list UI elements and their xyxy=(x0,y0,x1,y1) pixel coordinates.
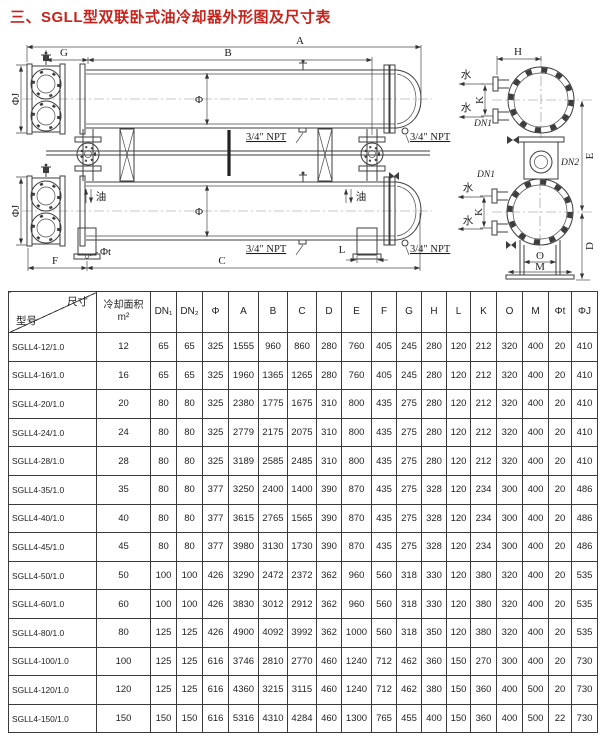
value-cell: 20 xyxy=(549,475,572,504)
value-cell: 435 xyxy=(372,533,397,562)
dim-label-phi-upper: Φ xyxy=(195,94,203,106)
value-cell: 426 xyxy=(203,590,229,619)
value-cell: 20 xyxy=(549,361,572,390)
value-cell: 760 xyxy=(342,361,372,390)
model-cell: SGLL4-150/1.0 xyxy=(9,704,97,733)
value-cell: 426 xyxy=(203,561,229,590)
value-cell: 280 xyxy=(422,390,447,419)
value-cell: 325 xyxy=(203,333,229,362)
value-cell: 120 xyxy=(447,333,471,362)
value-cell: 730 xyxy=(572,676,598,705)
value-cell: 960 xyxy=(259,333,288,362)
value-cell: 318 xyxy=(397,590,422,619)
value-cell: 362 xyxy=(317,618,342,647)
value-cell: 150 xyxy=(97,704,151,733)
value-cell: 150 xyxy=(151,704,177,733)
npt-label-1: 3/4″ NPT xyxy=(246,132,287,143)
value-cell: 20 xyxy=(549,533,572,562)
value-cell: 3012 xyxy=(259,590,288,619)
dim-label-k-lower: K xyxy=(473,208,485,216)
value-cell: 320 xyxy=(497,418,523,447)
model-cell: SGLL4-12/1.0 xyxy=(9,333,97,362)
value-cell: 275 xyxy=(397,504,422,533)
value-cell: 960 xyxy=(342,590,372,619)
value-cell: 1000 xyxy=(342,618,372,647)
value-cell: 5316 xyxy=(229,704,259,733)
table-row: SGLL4-16/1.01665653251960136512652807604… xyxy=(9,361,598,390)
value-cell: 410 xyxy=(572,333,598,362)
value-cell: 212 xyxy=(471,418,497,447)
value-cell: 360 xyxy=(471,676,497,705)
page-title: 三、SGLL型双联卧式油冷却器外形图及尺寸表 xyxy=(10,6,331,27)
value-cell: 460 xyxy=(317,676,342,705)
value-cell: 120 xyxy=(447,561,471,590)
value-cell: 20 xyxy=(549,447,572,476)
value-cell: 4310 xyxy=(259,704,288,733)
value-cell: 400 xyxy=(523,475,549,504)
outline-drawing: Φ Φ xyxy=(0,34,600,288)
table-header-row: 尺寸 型号 冷却面积 m² DN₁ DN₂ Φ A B C D E F G H … xyxy=(9,292,598,333)
value-cell: 150 xyxy=(447,704,471,733)
dim-label-m: M xyxy=(535,261,545,273)
col-header-k: K xyxy=(471,292,497,333)
value-cell: 320 xyxy=(497,333,523,362)
value-cell: 405 xyxy=(372,361,397,390)
value-cell: 400 xyxy=(523,361,549,390)
value-cell: 20 xyxy=(549,504,572,533)
oil-flow-labels: 油 油 xyxy=(86,189,366,203)
value-cell: 22 xyxy=(549,704,572,733)
value-cell: 377 xyxy=(203,533,229,562)
value-cell: 80 xyxy=(151,447,177,476)
value-cell: 712 xyxy=(372,676,397,705)
value-cell: 100 xyxy=(151,590,177,619)
value-cell: 3115 xyxy=(288,676,317,705)
value-cell: 400 xyxy=(523,504,549,533)
npt-label-2: 3/4″ NPT xyxy=(410,132,451,143)
value-cell: 426 xyxy=(203,618,229,647)
value-cell: 80 xyxy=(177,533,203,562)
value-cell: 870 xyxy=(342,533,372,562)
dim-label-d: D xyxy=(584,242,596,250)
value-cell: 2585 xyxy=(259,447,288,476)
value-cell: 380 xyxy=(471,561,497,590)
dim-label-h: H xyxy=(514,46,522,58)
col-header-g: G xyxy=(397,292,422,333)
value-cell: 280 xyxy=(317,333,342,362)
table-row: SGLL4-80/1.08012512542649004092399236210… xyxy=(9,618,598,647)
value-cell: 300 xyxy=(497,475,523,504)
value-cell: 310 xyxy=(317,390,342,419)
value-cell: 4360 xyxy=(229,676,259,705)
dim-label-phit: Φt xyxy=(100,246,111,258)
value-cell: 462 xyxy=(397,647,422,676)
value-cell: 310 xyxy=(317,447,342,476)
value-cell: 3746 xyxy=(229,647,259,676)
value-cell: 1960 xyxy=(229,361,259,390)
value-cell: 405 xyxy=(372,333,397,362)
value-cell: 45 xyxy=(97,533,151,562)
value-cell: 125 xyxy=(151,676,177,705)
value-cell: 24 xyxy=(97,418,151,447)
value-cell: 560 xyxy=(372,561,397,590)
value-cell: 362 xyxy=(317,561,342,590)
value-cell: 616 xyxy=(203,647,229,676)
value-cell: 20 xyxy=(549,590,572,619)
valve-icon-right xyxy=(361,143,383,165)
value-cell: 1240 xyxy=(342,676,372,705)
value-cell: 280 xyxy=(317,361,342,390)
value-cell: 560 xyxy=(372,618,397,647)
value-cell: 325 xyxy=(203,361,229,390)
value-cell: 2400 xyxy=(259,475,288,504)
value-cell: 300 xyxy=(497,647,523,676)
dim-label-g: G xyxy=(60,47,68,59)
value-cell: 280 xyxy=(422,361,447,390)
value-cell: 535 xyxy=(572,561,598,590)
value-cell: 390 xyxy=(317,475,342,504)
dim-label-f: F xyxy=(52,255,58,267)
value-cell: 80 xyxy=(97,618,151,647)
value-cell: 100 xyxy=(97,647,151,676)
table-body: SGLL4-12/1.01265653251555960860280760405… xyxy=(9,333,598,733)
value-cell: 20 xyxy=(549,390,572,419)
value-cell: 486 xyxy=(572,504,598,533)
value-cell: 400 xyxy=(523,390,549,419)
oil-label-right: 油 xyxy=(356,190,367,203)
value-cell: 760 xyxy=(342,333,372,362)
value-cell: 150 xyxy=(177,704,203,733)
value-cell: 245 xyxy=(397,333,422,362)
col-header-h: H xyxy=(422,292,447,333)
value-cell: 4900 xyxy=(229,618,259,647)
end-view-upper: H K 水 水 DN1 xyxy=(459,46,594,138)
value-cell: 125 xyxy=(177,647,203,676)
value-cell: 3615 xyxy=(229,504,259,533)
cooling-area-line1: 冷却面积 xyxy=(104,300,144,311)
value-cell: 1675 xyxy=(288,390,317,419)
value-cell: 300 xyxy=(497,533,523,562)
model-cell: SGLL4-16/1.0 xyxy=(9,361,97,390)
model-cell: SGLL4-100/1.0 xyxy=(9,647,97,676)
value-cell: 400 xyxy=(497,676,523,705)
value-cell: 560 xyxy=(372,590,397,619)
value-cell: 1775 xyxy=(259,390,288,419)
value-cell: 150 xyxy=(447,647,471,676)
value-cell: 2810 xyxy=(259,647,288,676)
col-header-dn1: DN₁ xyxy=(151,292,177,333)
value-cell: 330 xyxy=(422,561,447,590)
corner-size-label: 尺寸 xyxy=(67,296,88,309)
value-cell: 234 xyxy=(471,475,497,504)
col-header-m: M xyxy=(523,292,549,333)
value-cell: 212 xyxy=(471,333,497,362)
value-cell: 800 xyxy=(342,418,372,447)
value-cell: 1365 xyxy=(259,361,288,390)
value-cell: 80 xyxy=(177,475,203,504)
water-label-1: 水 xyxy=(461,69,472,81)
value-cell: 3250 xyxy=(229,475,259,504)
value-cell: 3830 xyxy=(229,590,259,619)
value-cell: 390 xyxy=(317,504,342,533)
value-cell: 400 xyxy=(523,533,549,562)
value-cell: 50 xyxy=(97,561,151,590)
value-cell: 1730 xyxy=(288,533,317,562)
oil-label-left: 油 xyxy=(96,190,107,203)
value-cell: 730 xyxy=(572,647,598,676)
table-row: SGLL4-40/1.04080803773615276515653908704… xyxy=(9,504,598,533)
value-cell: 460 xyxy=(317,704,342,733)
model-cell: SGLL4-120/1.0 xyxy=(9,676,97,705)
value-cell: 328 xyxy=(422,504,447,533)
value-cell: 80 xyxy=(151,390,177,419)
drain-valve-icon xyxy=(506,241,516,249)
value-cell: 2765 xyxy=(259,504,288,533)
value-cell: 2372 xyxy=(288,561,317,590)
value-cell: 280 xyxy=(422,447,447,476)
npt-label-3: 3/4″ NPT xyxy=(246,244,287,255)
value-cell: 435 xyxy=(372,504,397,533)
cooling-area-line2: m² xyxy=(118,312,130,323)
value-cell: 320 xyxy=(497,361,523,390)
value-cell: 486 xyxy=(572,475,598,504)
value-cell: 400 xyxy=(497,704,523,733)
value-cell: 212 xyxy=(471,361,497,390)
dn1-label-upper: DN1 xyxy=(473,119,492,129)
value-cell: 400 xyxy=(523,418,549,447)
value-cell: 275 xyxy=(397,533,422,562)
col-header-cooling-area: 冷却面积 m² xyxy=(97,292,151,333)
value-cell: 60 xyxy=(97,590,151,619)
corner-model-label: 型号 xyxy=(16,315,37,328)
value-cell: 325 xyxy=(203,418,229,447)
value-cell: 120 xyxy=(97,676,151,705)
table-row: SGLL4-50/1.05010010042632902472237236296… xyxy=(9,561,598,590)
value-cell: 100 xyxy=(177,561,203,590)
value-cell: 40 xyxy=(97,504,151,533)
value-cell: 2770 xyxy=(288,647,317,676)
value-cell: 20 xyxy=(549,333,572,362)
value-cell: 150 xyxy=(447,676,471,705)
value-cell: 462 xyxy=(397,676,422,705)
water-label-4: 水 xyxy=(463,215,474,227)
value-cell: 800 xyxy=(342,390,372,419)
value-cell: 270 xyxy=(471,647,497,676)
value-cell: 410 xyxy=(572,447,598,476)
value-cell: 320 xyxy=(497,390,523,419)
value-cell: 80 xyxy=(177,447,203,476)
interconnecting-pipework xyxy=(46,129,430,181)
value-cell: 3290 xyxy=(229,561,259,590)
value-cell: 360 xyxy=(471,704,497,733)
dim-label-k-upper: K xyxy=(474,96,486,104)
table-row: SGLL4-150/1.0150150150616531643104284460… xyxy=(9,704,598,733)
col-header-f: F xyxy=(372,292,397,333)
npt-label-4: 3/4″ NPT xyxy=(410,244,451,255)
value-cell: 400 xyxy=(523,618,549,647)
value-cell: 1240 xyxy=(342,647,372,676)
value-cell: 80 xyxy=(151,504,177,533)
value-cell: 380 xyxy=(422,676,447,705)
dim-label-phij-lower: ΦJ xyxy=(10,204,22,217)
dim-label-phi-lower: Φ xyxy=(195,206,203,218)
value-cell: 120 xyxy=(447,533,471,562)
water-label-2: 水 xyxy=(461,102,472,114)
value-cell: 100 xyxy=(151,561,177,590)
col-header-phit: Φt xyxy=(549,292,572,333)
value-cell: 435 xyxy=(372,390,397,419)
value-cell: 318 xyxy=(397,561,422,590)
value-cell: 435 xyxy=(372,475,397,504)
catalog-page: { "title": "三、SGLL型双联卧式油冷却器外形图及尺寸表", "di… xyxy=(0,0,600,742)
col-header-d: D xyxy=(317,292,342,333)
dimension-table-wrap: 尺寸 型号 冷却面积 m² DN₁ DN₂ Φ A B C D E F G H … xyxy=(8,291,598,733)
value-cell: 20 xyxy=(549,561,572,590)
model-cell: SGLL4-35/1.0 xyxy=(9,475,97,504)
value-cell: 280 xyxy=(422,418,447,447)
table-row: SGLL4-60/1.06010010042638303012291236296… xyxy=(9,590,598,619)
value-cell: 377 xyxy=(203,504,229,533)
dim-label-phij-upper: ΦJ xyxy=(10,92,22,105)
value-cell: 486 xyxy=(572,533,598,562)
value-cell: 435 xyxy=(372,418,397,447)
table-row: SGLL4-12/1.01265653251555960860280760405… xyxy=(9,333,598,362)
value-cell: 400 xyxy=(523,447,549,476)
value-cell: 80 xyxy=(177,418,203,447)
value-cell: 280 xyxy=(422,333,447,362)
value-cell: 2472 xyxy=(259,561,288,590)
value-cell: 325 xyxy=(203,390,229,419)
value-cell: 350 xyxy=(422,618,447,647)
value-cell: 765 xyxy=(372,704,397,733)
value-cell: 730 xyxy=(572,704,598,733)
channel-flange-lower xyxy=(31,181,61,243)
value-cell: 120 xyxy=(447,618,471,647)
model-cell: SGLL4-80/1.0 xyxy=(9,618,97,647)
value-cell: 435 xyxy=(372,447,397,476)
value-cell: 400 xyxy=(422,704,447,733)
value-cell: 870 xyxy=(342,475,372,504)
value-cell: 320 xyxy=(497,561,523,590)
value-cell: 1565 xyxy=(288,504,317,533)
value-cell: 12 xyxy=(97,333,151,362)
value-cell: 400 xyxy=(523,333,549,362)
value-cell: 410 xyxy=(572,361,598,390)
col-header-phij: ΦJ xyxy=(572,292,598,333)
table-row: SGLL4-35/1.03580803773250240014003908704… xyxy=(9,475,598,504)
dn2-label: DN2 xyxy=(560,158,579,168)
col-header-l: L xyxy=(447,292,471,333)
value-cell: 870 xyxy=(342,504,372,533)
value-cell: 362 xyxy=(317,590,342,619)
value-cell: 125 xyxy=(177,618,203,647)
corner-cell: 尺寸 型号 xyxy=(9,292,97,333)
table-row: SGLL4-28/1.02880803253189258524853108004… xyxy=(9,447,598,476)
dn1-label-lower: DN1 xyxy=(476,170,495,180)
value-cell: 712 xyxy=(372,647,397,676)
channel-flange-upper xyxy=(31,69,61,131)
value-cell: 460 xyxy=(317,647,342,676)
col-header-dn2: DN₂ xyxy=(177,292,203,333)
value-cell: 65 xyxy=(151,361,177,390)
valve-icon-left xyxy=(77,143,99,165)
model-cell: SGLL4-20/1.0 xyxy=(9,390,97,419)
value-cell: 2485 xyxy=(288,447,317,476)
value-cell: 3130 xyxy=(259,533,288,562)
end-view-connection: DN2 xyxy=(507,136,579,179)
value-cell: 535 xyxy=(572,590,598,619)
col-header-b: B xyxy=(259,292,288,333)
value-cell: 212 xyxy=(471,447,497,476)
value-cell: 120 xyxy=(447,418,471,447)
value-cell: 80 xyxy=(151,533,177,562)
value-cell: 800 xyxy=(342,447,372,476)
vent-valve-icon xyxy=(41,164,51,177)
model-cell: SGLL4-60/1.0 xyxy=(9,590,97,619)
value-cell: 310 xyxy=(317,418,342,447)
value-cell: 377 xyxy=(203,475,229,504)
value-cell: 380 xyxy=(471,618,497,647)
value-cell: 616 xyxy=(203,676,229,705)
value-cell: 328 xyxy=(422,475,447,504)
vent-plug-icon xyxy=(299,60,307,71)
value-cell: 1300 xyxy=(342,704,372,733)
value-cell: 320 xyxy=(497,447,523,476)
value-cell: 400 xyxy=(523,561,549,590)
table-row: SGLL4-120/1.0120125125616436032153115460… xyxy=(9,676,598,705)
value-cell: 320 xyxy=(497,590,523,619)
value-cell: 4092 xyxy=(259,618,288,647)
value-cell: 275 xyxy=(397,418,422,447)
value-cell: 20 xyxy=(549,618,572,647)
value-cell: 535 xyxy=(572,618,598,647)
value-cell: 1400 xyxy=(288,475,317,504)
value-cell: 234 xyxy=(471,533,497,562)
value-cell: 80 xyxy=(177,504,203,533)
value-cell: 80 xyxy=(151,418,177,447)
col-header-e: E xyxy=(342,292,372,333)
value-cell: 3980 xyxy=(229,533,259,562)
value-cell: 120 xyxy=(447,475,471,504)
value-cell: 2912 xyxy=(288,590,317,619)
value-cell: 3992 xyxy=(288,618,317,647)
vent-valve-icon xyxy=(507,136,519,144)
value-cell: 120 xyxy=(447,447,471,476)
model-cell: SGLL4-40/1.0 xyxy=(9,504,97,533)
value-cell: 125 xyxy=(151,618,177,647)
value-cell: 1265 xyxy=(288,361,317,390)
value-cell: 2175 xyxy=(259,418,288,447)
col-header-o: O xyxy=(497,292,523,333)
vent-plug-icon xyxy=(299,172,307,183)
value-cell: 275 xyxy=(397,447,422,476)
value-cell: 410 xyxy=(572,390,598,419)
value-cell: 410 xyxy=(572,418,598,447)
value-cell: 20 xyxy=(549,676,572,705)
value-cell: 120 xyxy=(447,390,471,419)
value-cell: 275 xyxy=(397,390,422,419)
value-cell: 4284 xyxy=(288,704,317,733)
dim-label-c: C xyxy=(218,255,225,267)
table-row: SGLL4-100/1.0100125125616374628102770460… xyxy=(9,647,598,676)
value-cell: 360 xyxy=(422,647,447,676)
col-header-c: C xyxy=(288,292,317,333)
value-cell: 234 xyxy=(471,504,497,533)
dimension-table: 尺寸 型号 冷却面积 m² DN₁ DN₂ Φ A B C D E F G H … xyxy=(8,291,598,733)
value-cell: 330 xyxy=(422,590,447,619)
value-cell: 1555 xyxy=(229,333,259,362)
value-cell: 300 xyxy=(497,504,523,533)
